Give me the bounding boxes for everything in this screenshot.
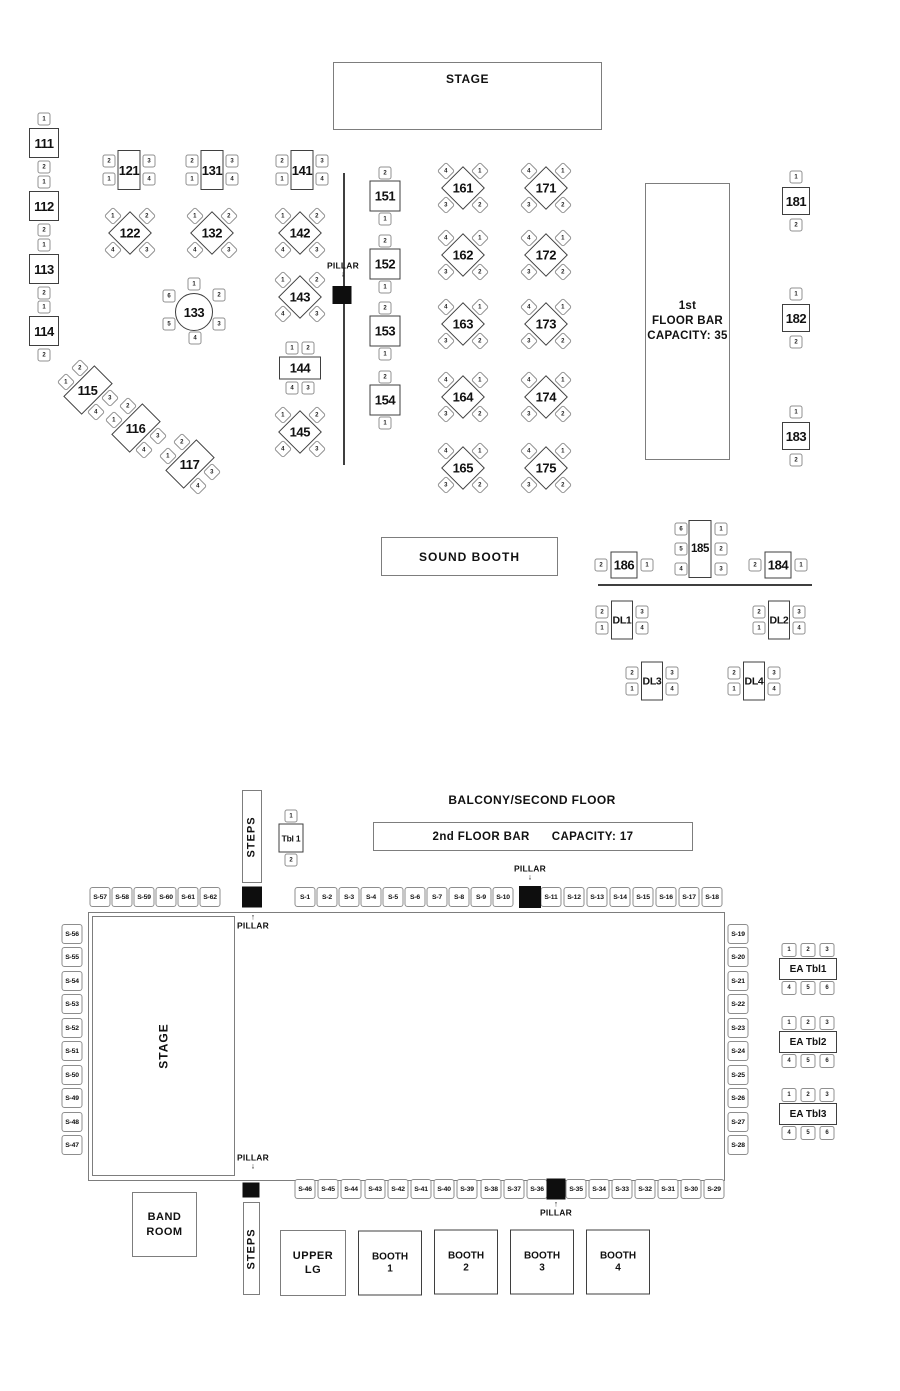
seat-s-57[interactable]: S-57 xyxy=(90,887,111,907)
arrow-down-icon: ↓ xyxy=(341,271,345,279)
table-label: Tbl 1 xyxy=(282,833,301,843)
chair-number: 3 xyxy=(147,158,150,164)
seat-s-38[interactable]: S-38 xyxy=(481,1179,502,1199)
chair-number: 4 xyxy=(196,483,199,489)
table-ea-tbl3[interactable]: EA Tbl3 xyxy=(779,1103,837,1125)
seat-s-62[interactable]: S-62 xyxy=(200,887,221,907)
seat-s-24[interactable]: S-24 xyxy=(728,1041,749,1061)
table-label: DL1 xyxy=(613,614,632,626)
seat-s-58[interactable]: S-58 xyxy=(112,887,133,907)
seat-s-47[interactable]: S-47 xyxy=(62,1135,83,1155)
pillar-label: ↑PILLAR xyxy=(237,913,269,930)
chair-ea-tbl3-2[interactable]: 2 xyxy=(801,1088,816,1102)
seat-s-37[interactable]: S-37 xyxy=(504,1179,525,1199)
chair-dl2-1[interactable]: 1 xyxy=(753,622,766,635)
table-151[interactable]: 151 xyxy=(370,181,401,212)
table-144[interactable]: 144 xyxy=(279,357,321,380)
seat-s-26[interactable]: S-26 xyxy=(728,1088,749,1108)
chair-ea-tbl2-2[interactable]: 2 xyxy=(801,1016,816,1030)
table-184[interactable]: 184 xyxy=(765,552,792,579)
chair-number: 2 xyxy=(315,412,318,418)
seat-s-28[interactable]: S-28 xyxy=(728,1135,749,1155)
chair-185-2[interactable]: 2 xyxy=(715,543,728,556)
seat-s-9[interactable]: S-9 xyxy=(471,887,492,907)
chair-dl3-2[interactable]: 2 xyxy=(626,667,639,680)
table-label: 165 xyxy=(453,461,474,476)
seat-s-31[interactable]: S-31 xyxy=(658,1179,679,1199)
table-label: DL4 xyxy=(745,675,764,687)
chair-182-1[interactable]: 1 xyxy=(790,288,803,301)
chair-153-2[interactable]: 2 xyxy=(379,302,392,315)
seat-s-13[interactable]: S-13 xyxy=(587,887,608,907)
chair-121-2[interactable]: 2 xyxy=(103,155,116,168)
chair-ea-tbl1-4[interactable]: 4 xyxy=(782,981,797,995)
table-183[interactable]: 183 xyxy=(782,422,810,450)
chair-ea-tbl3-3[interactable]: 3 xyxy=(820,1088,835,1102)
chair-154-1[interactable]: 1 xyxy=(379,417,392,430)
chair-number: 4 xyxy=(281,311,284,317)
chair-number: 2 xyxy=(806,1092,809,1098)
upper-lg-line2: LG xyxy=(293,1263,333,1277)
chair-141-4[interactable]: 4 xyxy=(316,173,329,186)
chair-number: 2 xyxy=(280,158,283,164)
table-153[interactable]: 153 xyxy=(370,316,401,347)
table-186[interactable]: 186 xyxy=(611,552,638,579)
seat-s-42[interactable]: S-42 xyxy=(388,1179,409,1199)
chair-144-2[interactable]: 2 xyxy=(302,342,315,355)
table-182[interactable]: 182 xyxy=(782,304,810,332)
table-booth-3[interactable]: BOOTH3 xyxy=(510,1230,574,1295)
chair-number: 3 xyxy=(108,395,111,401)
table-label: 132 xyxy=(202,226,223,241)
chair-dl1-2[interactable]: 2 xyxy=(596,606,609,619)
seat-s-56[interactable]: S-56 xyxy=(62,924,83,944)
seat-s-59[interactable]: S-59 xyxy=(134,887,155,907)
chair-number: 2 xyxy=(719,546,722,552)
table-121[interactable]: 121 xyxy=(118,150,141,190)
chair-131-2[interactable]: 2 xyxy=(186,155,199,168)
chair-141-1[interactable]: 1 xyxy=(276,173,289,186)
stage-floor1-label: STAGE xyxy=(446,72,489,86)
table-label: 163 xyxy=(453,317,474,332)
seat-s-48[interactable]: S-48 xyxy=(62,1112,83,1132)
seat-s-20[interactable]: S-20 xyxy=(728,947,749,967)
chair-ea-tbl1-3[interactable]: 3 xyxy=(820,943,835,957)
chair-144-3[interactable]: 3 xyxy=(302,382,315,395)
chair-184-1[interactable]: 1 xyxy=(795,559,808,572)
chair-number: 2 xyxy=(794,457,797,463)
seat-s-44[interactable]: S-44 xyxy=(341,1179,362,1199)
chair-number: 3 xyxy=(444,482,447,488)
seat-s-25[interactable]: S-25 xyxy=(728,1065,749,1085)
chair-dl1-3[interactable]: 3 xyxy=(636,606,649,619)
chair-number: 1 xyxy=(787,1020,790,1026)
chair-number: 2 xyxy=(561,338,564,344)
chair-number: 3 xyxy=(217,321,220,327)
chair-dl2-2[interactable]: 2 xyxy=(753,606,766,619)
chair-dl4-2[interactable]: 2 xyxy=(728,667,741,680)
table-label: 162 xyxy=(453,248,474,263)
steps-bottom-label: STEPS xyxy=(246,1228,258,1269)
seat-s-35[interactable]: S-35 xyxy=(566,1179,587,1199)
band-room-line2: ROOM xyxy=(146,1225,182,1239)
chair-tbl-1-2[interactable]: 2 xyxy=(285,854,298,867)
table-185[interactable]: 185 xyxy=(689,520,712,578)
chair-number: 2 xyxy=(289,857,292,863)
chair-number: 1 xyxy=(478,377,481,383)
chair-121-3[interactable]: 3 xyxy=(143,155,156,168)
chair-186-2[interactable]: 2 xyxy=(595,559,608,572)
table-label: 182 xyxy=(786,311,807,326)
table-booth-2[interactable]: BOOTH2 xyxy=(434,1230,498,1295)
chair-151-2[interactable]: 2 xyxy=(379,167,392,180)
chair-183-2[interactable]: 2 xyxy=(790,454,803,467)
table-114[interactable]: 114 xyxy=(29,316,59,346)
pillar-block xyxy=(547,1179,566,1200)
chair-141-3[interactable]: 3 xyxy=(316,155,329,168)
seat-s-52[interactable]: S-52 xyxy=(62,1018,83,1038)
chair-186-1[interactable]: 1 xyxy=(641,559,654,572)
table-label: 183 xyxy=(786,429,807,444)
table-111[interactable]: 111 xyxy=(29,128,59,158)
chair-number: 2 xyxy=(732,670,735,676)
table-dl2[interactable]: DL2 xyxy=(768,601,790,640)
seat-s-46[interactable]: S-46 xyxy=(295,1179,316,1199)
chair-number: 1 xyxy=(645,562,648,568)
table-label: 153 xyxy=(375,324,396,339)
chair-number: 4 xyxy=(230,176,233,182)
chair-number: 1 xyxy=(42,179,45,185)
chair-number: 2 xyxy=(42,164,45,170)
chair-number: 4 xyxy=(147,176,150,182)
bar2-capacity: CAPACITY: 17 xyxy=(552,831,634,843)
chair-ea-tbl3-5[interactable]: 5 xyxy=(801,1126,816,1140)
chair-185-1[interactable]: 1 xyxy=(715,523,728,536)
chair-152-1[interactable]: 1 xyxy=(379,281,392,294)
bar1-line2: FLOOR BAR xyxy=(647,314,728,329)
chair-dl1-4[interactable]: 4 xyxy=(636,622,649,635)
table-141[interactable]: 141 xyxy=(291,150,314,190)
table-label: 116 xyxy=(126,421,146,436)
chair-ea-tbl2-3[interactable]: 3 xyxy=(820,1016,835,1030)
seat-s-12[interactable]: S-12 xyxy=(564,887,585,907)
seat-s-29[interactable]: S-29 xyxy=(704,1179,725,1199)
chair-133-2[interactable]: 2 xyxy=(213,289,226,302)
table-label: 152 xyxy=(375,257,396,272)
chair-ea-tbl2-5[interactable]: 5 xyxy=(801,1054,816,1068)
table-154[interactable]: 154 xyxy=(370,385,401,416)
chair-133-5[interactable]: 5 xyxy=(163,318,176,331)
seat-s-22[interactable]: S-22 xyxy=(728,994,749,1014)
chair-111-1[interactable]: 1 xyxy=(38,113,51,126)
table-label: EA Tbl2 xyxy=(790,1037,827,1048)
chair-dl1-1[interactable]: 1 xyxy=(596,622,609,635)
chair-151-1[interactable]: 1 xyxy=(379,213,392,226)
chair-133-1[interactable]: 1 xyxy=(188,278,201,291)
chair-number: 1 xyxy=(794,409,797,415)
chair-113-2[interactable]: 2 xyxy=(38,287,51,300)
seat-s-41[interactable]: S-41 xyxy=(411,1179,432,1199)
chair-ea-tbl1-5[interactable]: 5 xyxy=(801,981,816,995)
chair-ea-tbl1-6[interactable]: 6 xyxy=(820,981,835,995)
chair-number: 6 xyxy=(167,293,170,299)
chair-dl4-4[interactable]: 4 xyxy=(768,683,781,696)
chair-number: 2 xyxy=(599,562,602,568)
chair-number: 3 xyxy=(527,338,530,344)
chair-114-1[interactable]: 1 xyxy=(38,301,51,314)
chair-number: 2 xyxy=(561,482,564,488)
chair-dl4-1[interactable]: 1 xyxy=(728,683,741,696)
chair-number: 6 xyxy=(825,1058,828,1064)
chair-131-1[interactable]: 1 xyxy=(186,173,199,186)
chair-number: 3 xyxy=(527,482,530,488)
chair-131-3[interactable]: 3 xyxy=(226,155,239,168)
table-label: 184 xyxy=(768,558,789,573)
chair-dl3-1[interactable]: 1 xyxy=(626,683,639,696)
chair-number: 2 xyxy=(383,305,386,311)
divider-line xyxy=(598,584,812,586)
table-label: 164 xyxy=(453,390,474,405)
bar1-line1: 1st xyxy=(647,299,728,314)
chair-144-1[interactable]: 1 xyxy=(286,342,299,355)
pillar-label: PILLAR↓ xyxy=(237,1153,269,1170)
chair-182-2[interactable]: 2 xyxy=(790,336,803,349)
seat-s-32[interactable]: S-32 xyxy=(635,1179,656,1199)
seat-s-40[interactable]: S-40 xyxy=(434,1179,455,1199)
seat-s-18[interactable]: S-18 xyxy=(702,887,723,907)
chair-number: 1 xyxy=(107,176,110,182)
wall-line xyxy=(343,173,345,465)
steps-top-label: STEPS xyxy=(246,816,258,857)
chair-number: 2 xyxy=(383,374,386,380)
chair-number: 1 xyxy=(561,448,564,454)
table-152[interactable]: 152 xyxy=(370,249,401,280)
chair-number: 3 xyxy=(527,269,530,275)
chair-112-2[interactable]: 2 xyxy=(38,224,51,237)
chair-153-1[interactable]: 1 xyxy=(379,348,392,361)
table-ea-tbl2[interactable]: EA Tbl2 xyxy=(779,1031,837,1053)
chair-number: 1 xyxy=(561,377,564,383)
chair-ea-tbl1-2[interactable]: 2 xyxy=(801,943,816,957)
seat-s-17[interactable]: S-17 xyxy=(679,887,700,907)
chair-number: 4 xyxy=(290,385,293,391)
stage-floor2: STAGE xyxy=(92,916,235,1176)
chair-183-1[interactable]: 1 xyxy=(790,406,803,419)
chair-121-1[interactable]: 1 xyxy=(103,173,116,186)
table-113[interactable]: 113 xyxy=(29,254,59,284)
chair-ea-tbl2-1[interactable]: 1 xyxy=(782,1016,797,1030)
seat-s-54[interactable]: S-54 xyxy=(62,971,83,991)
seat-s-1[interactable]: S-1 xyxy=(295,887,316,907)
upper-lg-label: UPPER LG xyxy=(293,1249,333,1278)
table-115[interactable]: 115 xyxy=(63,365,112,414)
chair-number: 1 xyxy=(289,813,292,819)
chair-184-2[interactable]: 2 xyxy=(749,559,762,572)
seat-s-23[interactable]: S-23 xyxy=(728,1018,749,1038)
chair-dl3-3[interactable]: 3 xyxy=(666,667,679,680)
seat-s-3[interactable]: S-3 xyxy=(339,887,360,907)
chair-number: 6 xyxy=(825,1130,828,1136)
seat-s-43[interactable]: S-43 xyxy=(365,1179,386,1199)
chair-number: 4 xyxy=(444,448,447,454)
table-131[interactable]: 131 xyxy=(201,150,224,190)
table-label: EA Tbl1 xyxy=(790,964,827,975)
chair-133-6[interactable]: 6 xyxy=(163,290,176,303)
chair-185-5[interactable]: 5 xyxy=(675,543,688,556)
chair-ea-tbl3-6[interactable]: 6 xyxy=(820,1126,835,1140)
table-label: 143 xyxy=(290,290,311,305)
chair-152-2[interactable]: 2 xyxy=(379,235,392,248)
seat-s-14[interactable]: S-14 xyxy=(610,887,631,907)
seat-s-10[interactable]: S-10 xyxy=(493,887,514,907)
chair-number: 4 xyxy=(281,247,284,253)
chair-number: 1 xyxy=(281,412,284,418)
chair-113-1[interactable]: 1 xyxy=(38,239,51,252)
chair-133-3[interactable]: 3 xyxy=(213,318,226,331)
chair-number: 1 xyxy=(757,625,760,631)
seat-s-51[interactable]: S-51 xyxy=(62,1041,83,1061)
chair-185-3[interactable]: 3 xyxy=(715,563,728,576)
seat-s-34[interactable]: S-34 xyxy=(589,1179,610,1199)
table-label: 151 xyxy=(375,189,396,204)
seat-s-49[interactable]: S-49 xyxy=(62,1088,83,1108)
table-booth-1[interactable]: BOOTH1 xyxy=(358,1231,422,1296)
seat-s-2[interactable]: S-2 xyxy=(317,887,338,907)
seat-s-6[interactable]: S-6 xyxy=(405,887,426,907)
chair-154-2[interactable]: 2 xyxy=(379,371,392,384)
seat-s-21[interactable]: S-21 xyxy=(728,971,749,991)
table-label: 111 xyxy=(34,136,53,151)
chair-131-4[interactable]: 4 xyxy=(226,173,239,186)
chair-number: 6 xyxy=(679,526,682,532)
chair-dl2-3[interactable]: 3 xyxy=(793,606,806,619)
seat-s-7[interactable]: S-7 xyxy=(427,887,448,907)
table-label: 181 xyxy=(786,194,807,209)
table-tbl-1[interactable]: Tbl 1 xyxy=(279,824,304,853)
seat-s-8[interactable]: S-8 xyxy=(449,887,470,907)
chair-number: 2 xyxy=(794,222,797,228)
seat-s-45[interactable]: S-45 xyxy=(318,1179,339,1199)
seat-s-15[interactable]: S-15 xyxy=(633,887,654,907)
chair-ea-tbl2-6[interactable]: 6 xyxy=(820,1054,835,1068)
table-133[interactable]: 133 xyxy=(175,293,213,331)
table-dl4[interactable]: DL4 xyxy=(743,662,765,701)
chair-number: 2 xyxy=(78,365,81,371)
chair-number: 4 xyxy=(142,447,145,453)
table-117[interactable]: 117 xyxy=(165,439,214,488)
chair-number: 1 xyxy=(111,213,114,219)
table-booth-4[interactable]: BOOTH4 xyxy=(586,1230,650,1295)
seat-s-5[interactable]: S-5 xyxy=(383,887,404,907)
band-room: BAND ROOM xyxy=(132,1192,197,1257)
chair-number: 4 xyxy=(527,377,530,383)
chair-number: 2 xyxy=(315,277,318,283)
chair-number: 2 xyxy=(126,403,129,409)
chair-number: 1 xyxy=(478,304,481,310)
chair-111-2[interactable]: 2 xyxy=(38,161,51,174)
seat-s-55[interactable]: S-55 xyxy=(62,947,83,967)
seat-s-33[interactable]: S-33 xyxy=(612,1179,633,1199)
chair-number: 1 xyxy=(190,176,193,182)
chair-133-4[interactable]: 4 xyxy=(189,332,202,345)
chair-121-4[interactable]: 4 xyxy=(143,173,156,186)
seat-s-61[interactable]: S-61 xyxy=(178,887,199,907)
chair-number: 1 xyxy=(192,281,195,287)
chair-114-2[interactable]: 2 xyxy=(38,349,51,362)
chair-number: 4 xyxy=(527,168,530,174)
pillar-block xyxy=(242,887,262,908)
chair-number: 2 xyxy=(600,609,603,615)
chair-number: 2 xyxy=(383,238,386,244)
chair-ea-tbl1-1[interactable]: 1 xyxy=(782,943,797,957)
chair-185-6[interactable]: 6 xyxy=(675,523,688,536)
seat-s-27[interactable]: S-27 xyxy=(728,1112,749,1132)
chair-185-4[interactable]: 4 xyxy=(675,563,688,576)
seat-s-19[interactable]: S-19 xyxy=(728,924,749,944)
first-floor-bar: 1st FLOOR BAR CAPACITY: 35 xyxy=(645,183,730,460)
chair-number: 3 xyxy=(825,1092,828,1098)
table-116[interactable]: 116 xyxy=(111,403,160,452)
chair-number: 3 xyxy=(640,609,643,615)
chair-number: 5 xyxy=(679,546,682,552)
seat-s-36[interactable]: S-36 xyxy=(527,1179,548,1199)
seat-s-53[interactable]: S-53 xyxy=(62,994,83,1014)
chair-ea-tbl2-4[interactable]: 4 xyxy=(782,1054,797,1068)
chair-number: 3 xyxy=(227,247,230,253)
chair-dl4-3[interactable]: 3 xyxy=(768,667,781,680)
seat-s-30[interactable]: S-30 xyxy=(681,1179,702,1199)
chair-number: 3 xyxy=(444,269,447,275)
seat-s-60[interactable]: S-60 xyxy=(156,887,177,907)
chair-181-1[interactable]: 1 xyxy=(790,171,803,184)
table-ea-tbl1[interactable]: EA Tbl1 xyxy=(779,958,837,980)
chair-dl3-4[interactable]: 4 xyxy=(666,683,679,696)
seat-s-11[interactable]: S-11 xyxy=(541,887,562,907)
table-181[interactable]: 181 xyxy=(782,187,810,215)
seat-s-4[interactable]: S-4 xyxy=(361,887,382,907)
chair-number: 5 xyxy=(806,985,809,991)
chair-number: 1 xyxy=(383,420,386,426)
chair-tbl-1-1[interactable]: 1 xyxy=(285,810,298,823)
chair-141-2[interactable]: 2 xyxy=(276,155,289,168)
chair-number: 2 xyxy=(180,439,183,445)
chair-112-1[interactable]: 1 xyxy=(38,176,51,189)
chair-144-4[interactable]: 4 xyxy=(286,382,299,395)
table-label: 144 xyxy=(290,361,311,376)
chair-181-2[interactable]: 2 xyxy=(790,219,803,232)
seat-s-39[interactable]: S-39 xyxy=(457,1179,478,1199)
seat-s-50[interactable]: S-50 xyxy=(62,1065,83,1085)
table-dl3[interactable]: DL3 xyxy=(641,662,663,701)
seat-s-16[interactable]: S-16 xyxy=(656,887,677,907)
chair-dl2-4[interactable]: 4 xyxy=(793,622,806,635)
chair-number: 4 xyxy=(444,377,447,383)
table-label: 114 xyxy=(34,324,54,339)
chair-number: 1 xyxy=(64,379,67,385)
table-dl1[interactable]: DL1 xyxy=(611,601,633,640)
chair-number: 4 xyxy=(193,247,196,253)
chair-number: 4 xyxy=(444,235,447,241)
chair-number: 2 xyxy=(107,158,110,164)
table-label: EA Tbl3 xyxy=(790,1109,827,1120)
chair-number: 1 xyxy=(290,345,293,351)
chair-ea-tbl3-1[interactable]: 1 xyxy=(782,1088,797,1102)
pillar-block xyxy=(519,886,541,908)
chair-ea-tbl3-4[interactable]: 4 xyxy=(782,1126,797,1140)
chair-number: 3 xyxy=(527,202,530,208)
table-112[interactable]: 112 xyxy=(29,191,59,221)
chair-number: 1 xyxy=(794,291,797,297)
